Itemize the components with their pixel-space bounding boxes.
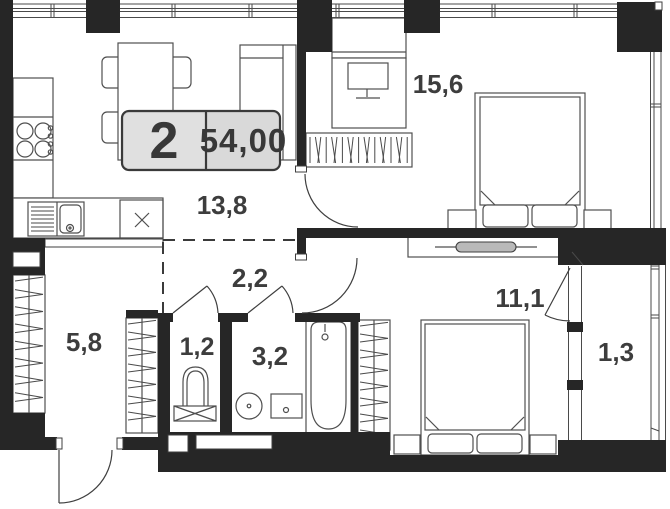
door-jamb bbox=[296, 254, 307, 260]
pillow bbox=[477, 434, 522, 453]
bed-second bbox=[421, 320, 529, 455]
wardrobe-bedroom-second bbox=[358, 320, 390, 450]
pillow bbox=[428, 434, 473, 453]
bedroom-main-furniture bbox=[306, 18, 611, 230]
bathroom-fixtures bbox=[236, 320, 351, 437]
door-jamb bbox=[296, 166, 307, 172]
balcony-partition bbox=[569, 252, 584, 440]
desk bbox=[332, 58, 406, 128]
door-bedroom-second bbox=[302, 258, 357, 313]
floor-plan-drawing: 13,8 15,6 11,1 5,8 2,2 1,2 3,2 1,3 2 54,… bbox=[0, 0, 670, 509]
vent bbox=[655, 2, 662, 10]
washing-machine-icon bbox=[236, 393, 262, 419]
coat-rack bbox=[306, 133, 412, 167]
shaft bbox=[13, 252, 40, 267]
door-jamb bbox=[117, 438, 123, 449]
room-label-wc: 1,2 bbox=[180, 333, 215, 361]
door-balcony bbox=[545, 268, 570, 321]
room-label-bedroom-second: 11,1 bbox=[495, 283, 544, 313]
zone-boundary bbox=[163, 240, 297, 313]
wardrobe-hall-left bbox=[13, 275, 45, 413]
window-right-bedroom bbox=[651, 52, 662, 228]
nightstand bbox=[448, 210, 476, 230]
wardrobe-hall-right bbox=[126, 318, 158, 433]
room-label-corridor: 2,2 bbox=[232, 263, 268, 293]
bath-sink-icon bbox=[271, 394, 302, 418]
pillow bbox=[532, 205, 577, 227]
wc-fixtures bbox=[174, 367, 216, 421]
bed-main bbox=[475, 93, 585, 230]
room-label-bathroom: 3,2 bbox=[252, 341, 288, 371]
shaft bbox=[196, 435, 272, 449]
door-bedroom-main bbox=[305, 174, 358, 227]
room-label-living-kitchen: 13,8 bbox=[197, 190, 248, 220]
door-jamb bbox=[56, 438, 62, 449]
badge-room-count: 2 bbox=[150, 112, 179, 170]
nightstand bbox=[584, 210, 611, 230]
pillar bbox=[404, 0, 440, 33]
shaft bbox=[168, 435, 188, 452]
nightstand bbox=[530, 435, 556, 454]
pillow bbox=[483, 205, 528, 227]
partition-kitchen-hall bbox=[45, 239, 163, 247]
bathtub-icon bbox=[306, 320, 351, 437]
toilet-icon bbox=[174, 367, 216, 421]
room-label-bedroom-main: 15,6 bbox=[413, 69, 464, 99]
pillar bbox=[86, 0, 120, 33]
room-label-hallway: 5,8 bbox=[66, 327, 102, 357]
badge-total-area: 54,00 bbox=[200, 122, 288, 159]
summary-badge: 2 54,00 bbox=[122, 111, 287, 170]
bedroom-second-furniture bbox=[394, 237, 565, 455]
door-wc bbox=[173, 286, 218, 313]
pillar bbox=[297, 0, 332, 52]
room-label-balcony: 1,3 bbox=[598, 337, 634, 367]
floor-plan-page: 13,8 15,6 11,1 5,8 2,2 1,2 3,2 1,3 2 54,… bbox=[0, 0, 670, 509]
nightstand bbox=[394, 435, 420, 454]
door-entrance bbox=[59, 450, 112, 503]
